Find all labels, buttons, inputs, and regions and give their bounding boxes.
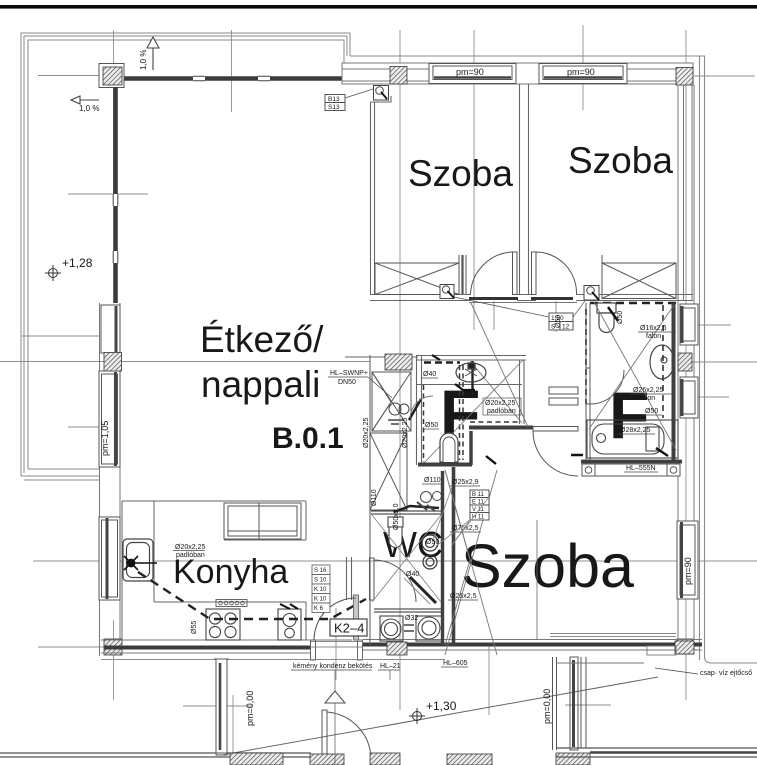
svg-text:Ø32: Ø32	[405, 615, 418, 622]
svg-text:S 16: S 16	[314, 568, 327, 574]
svg-text:B13: B13	[328, 96, 340, 103]
svg-text:K 10: K 10	[314, 597, 327, 603]
svg-text:Ø50x2,0: Ø50x2,0	[393, 503, 400, 530]
svg-text:Ø110: Ø110	[424, 477, 441, 484]
svg-text:Ø26x2,25: Ø26x2,25	[633, 387, 663, 394]
svg-text:HL–605: HL–605	[443, 660, 468, 667]
svg-text:pm=0,00: pm=0,00	[245, 691, 255, 726]
svg-text:pm=90: pm=90	[567, 67, 595, 77]
svg-text:Ø20x2,25: Ø20x2,25	[363, 418, 370, 448]
svg-text:Ø50: Ø50	[555, 315, 562, 328]
svg-text:HL–555N: HL–555N	[626, 465, 656, 472]
svg-text:falon: falon	[646, 333, 661, 340]
svg-text:Szoba: Szoba	[568, 140, 673, 181]
svg-text:HL–SWNP+: HL–SWNP+	[330, 370, 368, 377]
svg-text:pm=1,05: pm=1,05	[100, 421, 110, 456]
svg-text:B.0.1: B.0.1	[272, 422, 344, 455]
svg-text:S 10: S 10	[314, 578, 327, 584]
svg-text:Ø40: Ø40	[406, 571, 419, 578]
svg-text:+1,30: +1,30	[426, 699, 457, 713]
svg-text:K 6: K 6	[314, 606, 324, 612]
svg-text:S13: S13	[328, 104, 340, 111]
svg-text:Ø20x2,25: Ø20x2,25	[402, 418, 409, 448]
svg-text:Ø40: Ø40	[423, 371, 436, 378]
svg-text:Szoba: Szoba	[461, 532, 634, 600]
svg-text:padlóban: padlóban	[487, 408, 516, 415]
svg-text:1,0 %: 1,0 %	[79, 104, 99, 113]
svg-text:kémény kondenz bekötés: kémény kondenz bekötés	[293, 663, 373, 670]
svg-text:Ø110: Ø110	[371, 489, 378, 506]
svg-text:K2–4: K2–4	[334, 621, 364, 636]
svg-text:K 10: K 10	[314, 587, 327, 593]
svg-text:Étkező/: Étkező/	[200, 319, 324, 360]
svg-text:falon: falon	[640, 395, 655, 402]
svg-text:Ø50: Ø50	[425, 422, 438, 429]
svg-text:Ø16x2,6: Ø16x2,6	[640, 325, 667, 332]
svg-text:Ø25x2,9: Ø25x2,9	[452, 479, 479, 486]
svg-text:pm=0,00: pm=0,00	[542, 689, 552, 724]
svg-text:V 11: V 11	[472, 507, 485, 513]
svg-text:csap· víz ejtőcső: csap· víz ejtőcső	[700, 670, 752, 677]
svg-text:12: 12	[562, 324, 570, 331]
svg-text:HL–21: HL–21	[380, 663, 401, 670]
svg-text:DN50: DN50	[338, 379, 356, 386]
svg-text:1,0 %: 1,0 %	[139, 50, 148, 70]
svg-text:B 11: B 11	[472, 492, 485, 498]
svg-text:padlóban: padlóban	[176, 552, 205, 559]
svg-text:pm=90: pm=90	[683, 557, 693, 585]
svg-text:Ø20x2,25: Ø20x2,25	[175, 544, 205, 551]
svg-text:nappali: nappali	[201, 364, 320, 405]
svg-text:H 11: H 11	[472, 515, 485, 521]
svg-text:Ø20x2,25: Ø20x2,25	[485, 400, 515, 407]
svg-text:Ø25x2,5: Ø25x2,5	[450, 593, 477, 600]
svg-text:Ø55: Ø55	[191, 621, 198, 634]
svg-text:Ø50: Ø50	[645, 408, 658, 415]
svg-text:Ø28x2,25: Ø28x2,25	[620, 427, 650, 434]
svg-text:pm=90: pm=90	[456, 67, 484, 77]
svg-text:+1,28: +1,28	[62, 256, 93, 270]
svg-text:Szoba: Szoba	[408, 153, 513, 194]
svg-text:Ø50: Ø50	[617, 311, 624, 324]
